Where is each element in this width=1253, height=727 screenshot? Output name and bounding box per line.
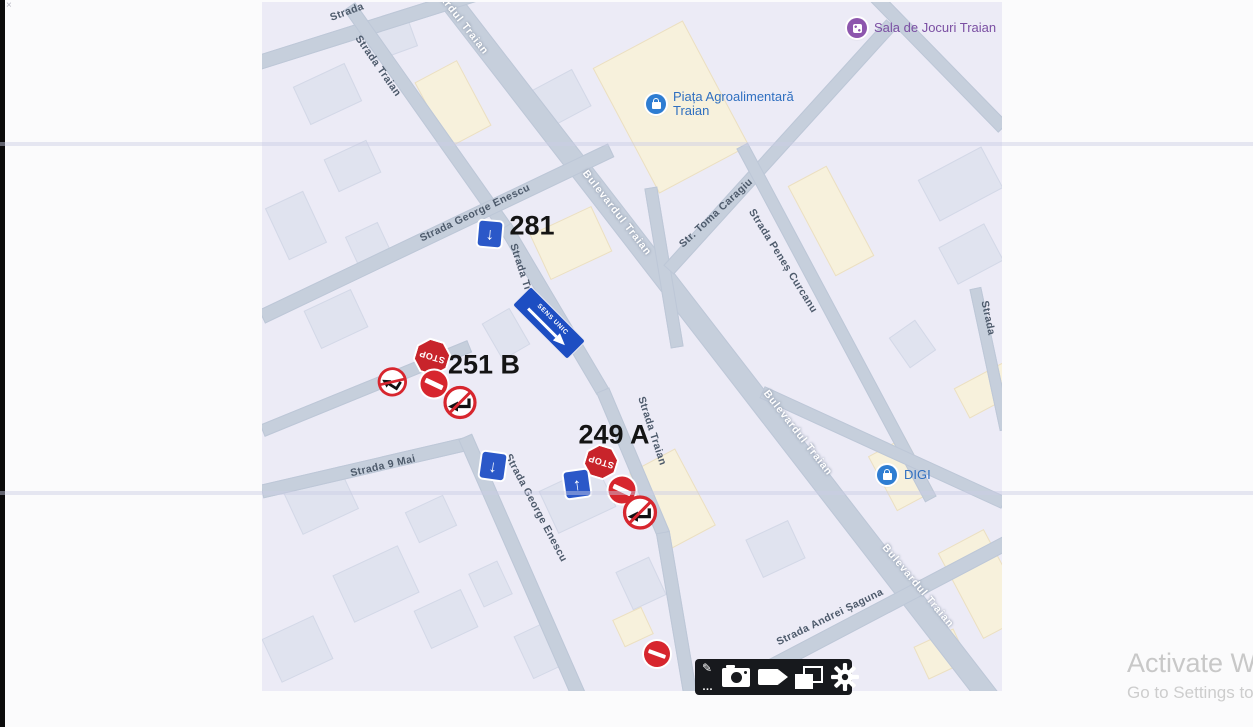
scan-fold-line: [0, 491, 1253, 495]
address-label: 281: [509, 211, 554, 242]
shopping-bag-icon: [877, 465, 897, 485]
building: [414, 589, 479, 649]
stop-text: STOP: [418, 348, 446, 365]
capture-toolbar: ✎ …: [695, 659, 852, 695]
building: [889, 320, 936, 369]
games-icon: [847, 18, 867, 38]
no-entry-sign: [640, 637, 673, 670]
video-button[interactable]: [758, 669, 787, 685]
map-image: Strada Strada Traian Strada George Enesc…: [262, 2, 1002, 691]
building: [405, 495, 457, 544]
road-strada-traian: [656, 531, 698, 691]
scan-fold-line: [0, 142, 1253, 146]
poi-piata-agroalimentara: Piața Agroalimentară Traian: [646, 90, 794, 118]
building: [612, 607, 654, 648]
activate-windows-subtext: Go to Settings to: [1127, 683, 1253, 703]
no-left-turn-sign: [443, 386, 477, 425]
activate-windows-watermark: Activate Win: [1127, 648, 1253, 679]
building: [293, 63, 362, 125]
poi-label-line1: Piața Agroalimentară: [673, 89, 794, 104]
layers-button[interactable]: [795, 666, 823, 689]
screen: { "scan": { "corner_mark": "×" }, "water…: [0, 0, 1253, 727]
stop-text: STOP: [587, 453, 615, 470]
one-way-down-sign: ↓: [477, 221, 502, 248]
scan-edge-strip: [0, 0, 5, 727]
building: [324, 140, 382, 192]
building: [265, 191, 327, 260]
pen-icon: ✎: [702, 663, 712, 673]
video-camera-icon: [758, 669, 779, 685]
building: [332, 545, 419, 623]
ellipsis-icon: …: [702, 683, 714, 691]
poi-label-line2: Traian: [673, 103, 709, 118]
poi-label: Sala de Jocuri Traian: [874, 21, 996, 35]
building: [938, 223, 1002, 284]
annotate-button[interactable]: ✎ …: [702, 663, 714, 691]
shopping-bag-icon: [646, 94, 666, 114]
one-way-down-sign: ↓: [479, 451, 506, 480]
camera-button[interactable]: [722, 668, 750, 687]
scan-corner-mark: ×: [6, 0, 12, 11]
building: [745, 520, 805, 578]
camera-icon: [722, 668, 750, 687]
gear-icon: [831, 663, 859, 691]
building: [468, 560, 513, 607]
layers-icon: [795, 666, 823, 689]
no-left-turn-sign: [623, 495, 658, 535]
street-label: Str. Toma Caragiu: [677, 176, 755, 250]
building: [262, 615, 333, 683]
poi-sala-de-jocuri: Sala de Jocuri Traian: [847, 18, 996, 38]
poi-digi: DIGI: [877, 465, 931, 485]
poi-label: DIGI: [904, 468, 931, 482]
address-label: 251 B: [448, 350, 520, 381]
building: [615, 557, 666, 611]
poi-label: Piața Agroalimentară Traian: [673, 90, 794, 118]
settings-button[interactable]: [831, 663, 859, 691]
building: [918, 146, 1002, 221]
